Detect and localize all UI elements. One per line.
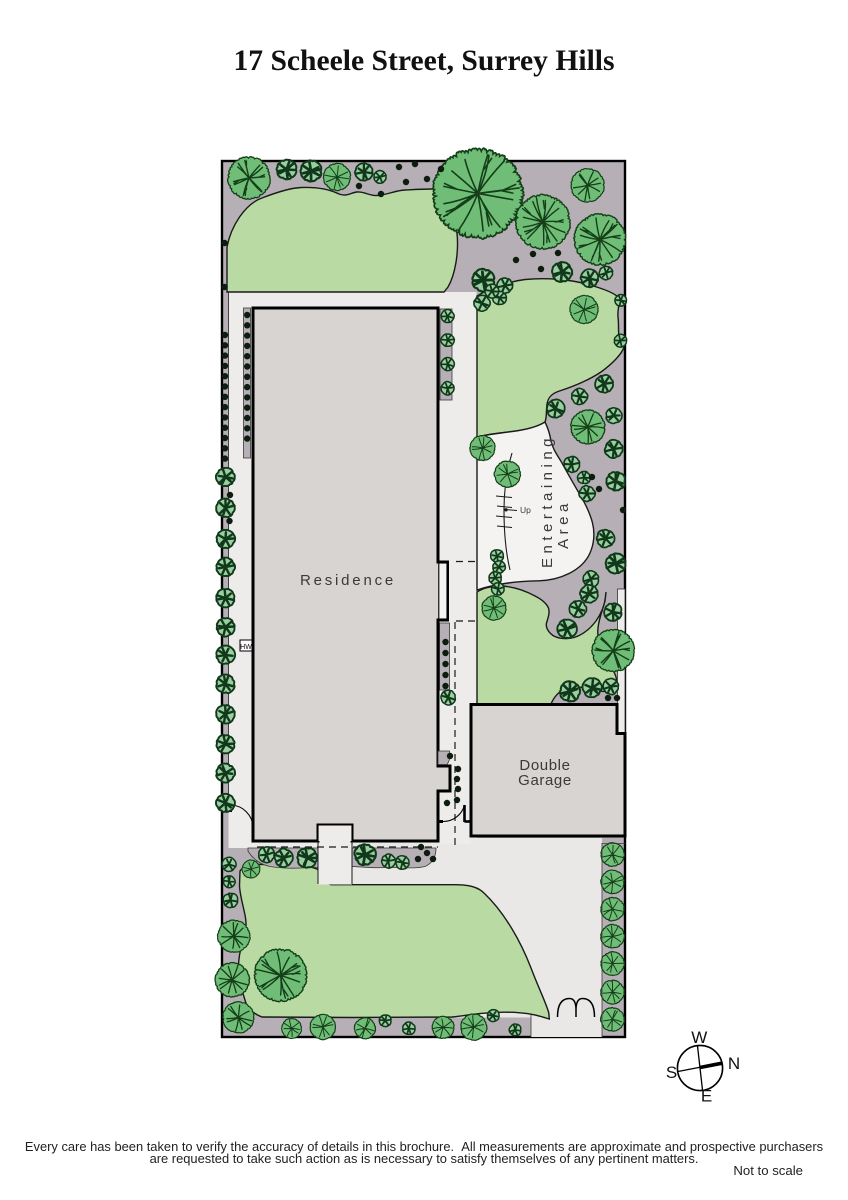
svg-text:are requested to take such act: are requested to take such action as is … <box>150 1151 699 1166</box>
svg-text:S: S <box>666 1063 677 1082</box>
svg-text:W: W <box>691 1028 707 1047</box>
svg-text:17 Scheele Street, Surrey Hill: 17 Scheele Street, Surrey Hills <box>233 45 614 77</box>
svg-text:HW: HW <box>240 644 252 651</box>
svg-text:E: E <box>701 1087 712 1106</box>
svg-text:N: N <box>728 1054 740 1073</box>
svg-text:Up: Up <box>520 505 531 515</box>
svg-text:Garage: Garage <box>518 772 572 789</box>
svg-text:Residence: Residence <box>300 572 396 589</box>
svg-text:Not to scale: Not to scale <box>733 1163 803 1178</box>
